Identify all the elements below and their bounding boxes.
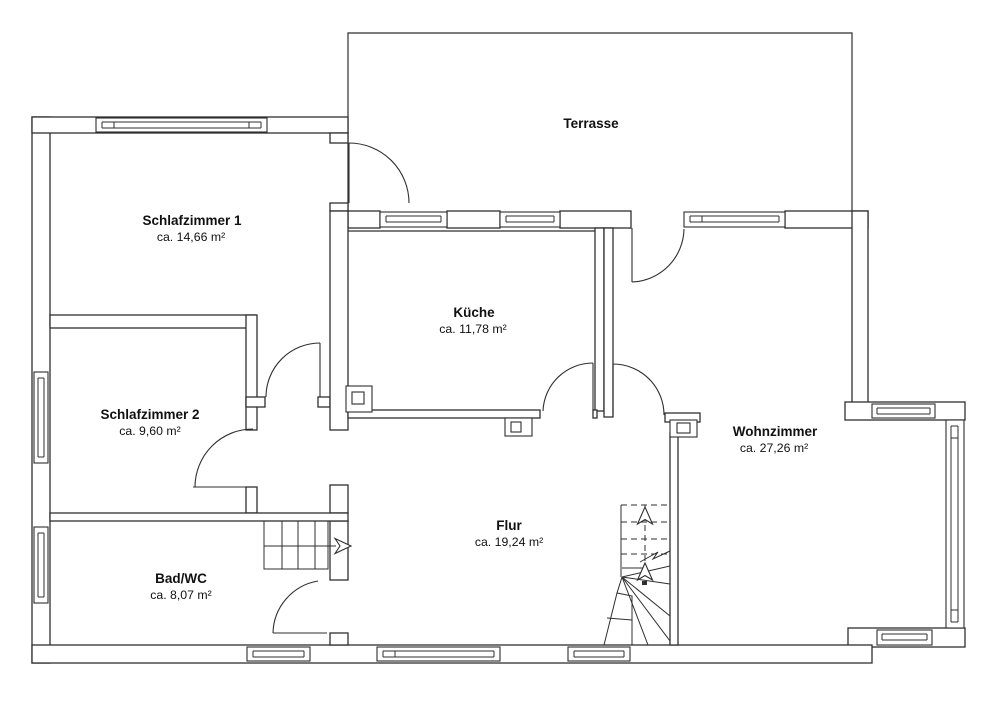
label-schlafzimmer2: Schlafzimmer 2 xyxy=(100,407,199,422)
window-wohnzimmer-top xyxy=(684,212,785,227)
door-schlafzimmer1 xyxy=(266,343,320,397)
window-schlafzimmer2 xyxy=(34,372,48,463)
door-flur-wohnzimmer xyxy=(613,364,664,415)
window-bay-bottom xyxy=(877,630,932,645)
area-bad-wc: ca. 8,07 m² xyxy=(150,588,212,602)
window-flur-2 xyxy=(568,647,630,661)
door-bad xyxy=(273,581,327,633)
label-schlafzimmer1: Schlafzimmer 1 xyxy=(142,213,242,228)
window-flur-1 xyxy=(377,647,500,661)
area-wohnzimmer: ca. 27,26 m² xyxy=(740,441,808,455)
stairs-up-arrow-icon xyxy=(638,563,653,580)
window-bay-top xyxy=(872,404,935,418)
door-schlafzimmer1-terrasse xyxy=(349,143,409,203)
label-kueche: Küche xyxy=(453,305,495,320)
label-terrasse: Terrasse xyxy=(563,116,619,131)
kitchen-shaft xyxy=(346,386,372,412)
area-schlafzimmer2: ca. 9,60 m² xyxy=(119,424,181,438)
area-schlafzimmer1: ca. 14,66 m² xyxy=(157,230,225,244)
area-flur: ca. 19,24 m² xyxy=(475,535,543,549)
door-terrasse-wohnzimmer xyxy=(632,228,684,282)
interior-walls xyxy=(50,133,700,645)
main-staircase xyxy=(604,505,670,645)
window-bad-left xyxy=(34,527,48,603)
area-kueche: ca. 11,78 m² xyxy=(439,322,506,336)
door-kueche xyxy=(543,363,593,411)
door-schlafzimmer2 xyxy=(193,429,253,487)
label-flur: Flur xyxy=(496,518,522,533)
stairs-up-arrow-icon xyxy=(638,507,653,524)
window-bay-right xyxy=(946,420,964,628)
hall-shaft xyxy=(505,418,532,436)
room-labels: Terrasse Schlafzimmer 1 ca. 14,66 m² Küc… xyxy=(100,116,818,602)
floor-plan-drawing: Terrasse Schlafzimmer 1 ca. 14,66 m² Küc… xyxy=(0,0,1000,705)
window-schlafzimmer1 xyxy=(96,118,267,132)
label-wohnzimmer: Wohnzimmer xyxy=(733,424,818,439)
wall-right-upper xyxy=(852,211,868,412)
livingroom-pillar xyxy=(670,420,697,437)
window-kueche-2 xyxy=(500,212,560,227)
floor-plan: Terrasse Schlafzimmer 1 ca. 14,66 m² Küc… xyxy=(0,0,1000,705)
label-bad-wc: Bad/WC xyxy=(155,571,207,586)
window-bad xyxy=(247,647,310,661)
window-kueche-1 xyxy=(380,212,447,227)
